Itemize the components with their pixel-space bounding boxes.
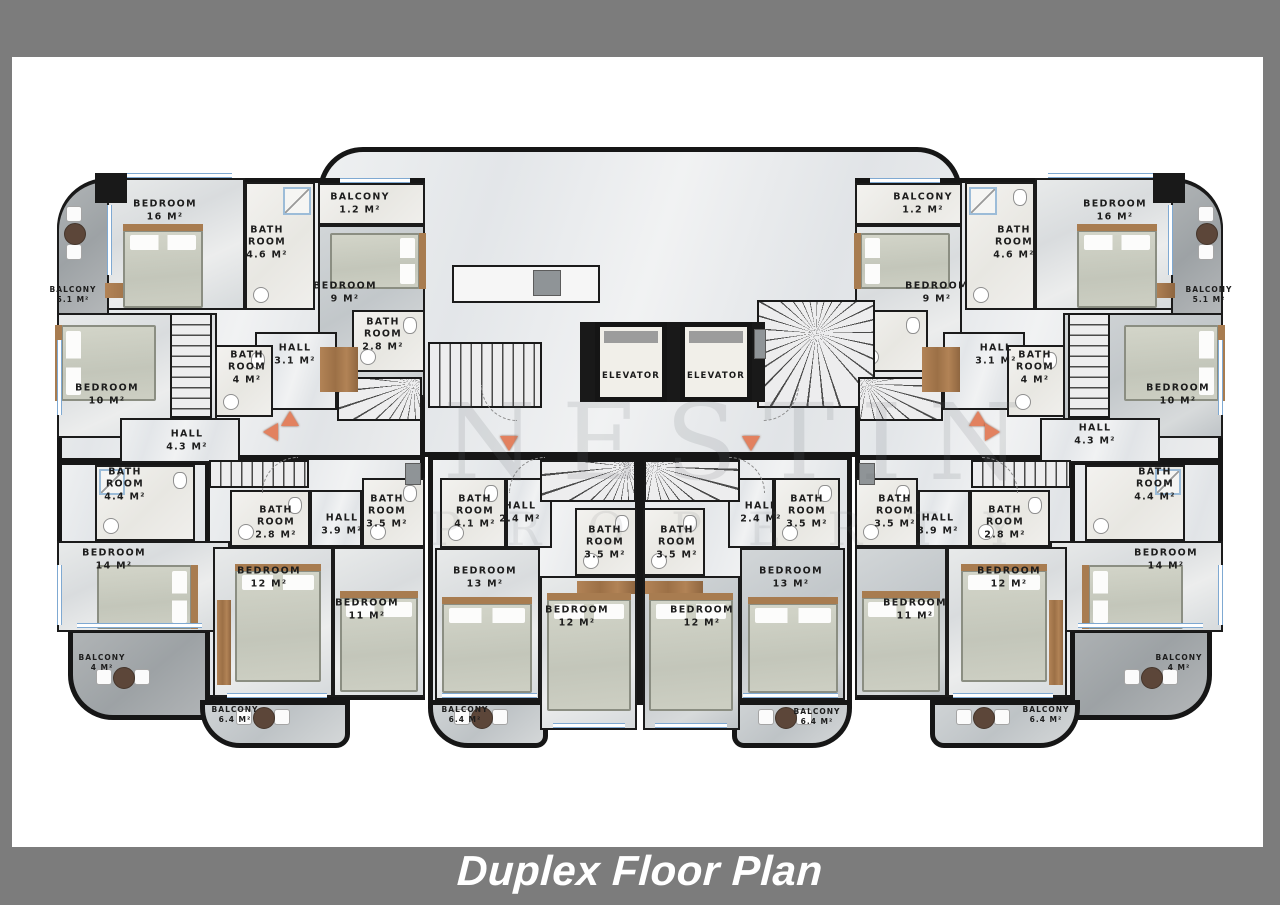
bed-bedroom-14-left [97,565,192,629]
bed-bedroom-13-d [748,603,838,693]
label-bathroom-3-5-b: BATH ROOM3.5 M² [364,494,410,531]
label-bathroom-3-5-c: BATH ROOM3.5 M² [582,525,628,562]
label-bathroom-4-right: BATH ROOM4 M² [1012,350,1058,387]
elevator-1: ELEVATOR [595,322,667,402]
elevator-2: ELEVATOR [680,322,752,402]
wood-floor-right [922,347,960,392]
label-bedroom-13-c: BEDROOM13 M² [453,566,517,591]
label-balcony-1-2-left: BALCONY1.2 M² [330,192,390,217]
window-balcony-1-2-right [870,178,940,183]
wood-floor-left [320,347,358,392]
direction-triangle-west-left [263,423,278,441]
label-hall-4-3-right: HALL4.3 M² [1074,423,1116,448]
window-bedroom-12-c [553,723,625,728]
label-bathroom-4-6-left: BATH ROOM4.6 M² [244,225,290,262]
window-bedroom-12-e [953,693,1053,698]
label-balcony-6-4-c: BALCONY6.4 M² [442,705,489,725]
frame-left [0,57,12,847]
label-bedroom-16-left: BEDROOM16 M² [133,199,197,224]
stair-apartment-c [540,460,636,502]
window-bedroom-16-right-side [1168,205,1173,275]
label-bedroom-12-e: BEDROOM12 M² [977,566,1041,591]
frame-right [1263,57,1280,847]
bed-bedroom-16-left [123,230,203,308]
label-balcony-5-1-right: BALCONY5.1 M² [1184,285,1234,305]
shower-4-6-right [969,187,997,215]
label-bathroom-2-8-left: BATH ROOM2.8 M² [360,317,406,354]
label-balcony-5-1-left: BALCONY5.1 M² [48,285,98,305]
label-bathroom-3-5-d: BATH ROOM3.5 M² [654,525,700,562]
window-bedroom-13-d [743,693,838,698]
label-balcony-6-4-d: BALCONY6.4 M² [794,707,841,727]
floor-plan: ELEVATOR ELEVATOR [57,145,1223,760]
label-bedroom-12-c: BEDROOM12 M² [545,605,609,630]
label-hall-3-9-e: HALL3.9 M² [917,513,959,538]
label-bathroom-2-8-b: BATH ROOM2.8 M² [253,505,299,542]
label-bedroom-16-right: BEDROOM16 M² [1083,199,1147,224]
label-bedroom-11-b: BEDROOM11 M² [335,598,399,623]
label-bedroom-14-right: BEDROOM14 M² [1134,548,1198,573]
direction-triangle-up-left [281,411,299,426]
elevator-1-label: ELEVATOR [602,371,660,381]
wardrobe-e [1049,600,1063,685]
window-bedroom-16-right [1048,173,1153,178]
utility-shaft-b [405,463,421,485]
label-hall-3-9-b: HALL3.9 M² [321,513,363,538]
duplex-stair-right-wing [1068,313,1110,418]
window-bedroom-14-left [57,565,62,625]
label-bedroom-9-left: BEDROOM9 M² [313,281,377,306]
window-balcony-1-2-left [340,178,410,183]
label-bedroom-9-right: BEDROOM9 M² [905,281,969,306]
label-bedroom-10-right: BEDROOM10 M² [1146,383,1210,408]
label-bedroom-10-left: BEDROOM10 M² [75,383,139,408]
label-bathroom-3-5-e: BATH ROOM3.5 M² [872,494,918,531]
label-bathroom-4-4-left: BATH ROOM4.4 M² [102,467,148,504]
label-bathroom-4-4-right: BATH ROOM4.4 M² [1132,467,1178,504]
label-bedroom-11-e: BEDROOM11 M² [883,598,947,623]
label-hall-2-4-c: HALL2.4 M² [499,501,541,526]
label-bedroom-13-d: BEDROOM13 M² [759,566,823,591]
label-balcony-6-4-e: BALCONY6.4 M² [1023,705,1070,725]
label-bathroom-4-left: BATH ROOM4 M² [224,350,270,387]
stair-apartment-d [644,460,740,502]
duplex-stair-left-wing [170,313,212,418]
wall-block-top-right [1153,173,1185,203]
window-bedroom-10-left [57,340,62,415]
wall-block-top-left [95,173,127,203]
balcony-furniture-5-1-left [67,207,81,259]
window-balcony-4-left [77,623,202,628]
window-bedroom-14-right [1218,565,1223,625]
label-balcony-4-left: BALCONY4 M² [79,653,126,673]
label-balcony-1-2-right: BALCONY1.2 M² [893,192,953,217]
label-hall-3-1-right: HALL3.1 M² [975,343,1017,368]
window-bedroom-10-right [1218,340,1223,415]
balcony-furniture-5-1-right [1199,207,1213,259]
window-bedroom-16-left-side [107,205,112,275]
label-bathroom-4-1-c: BATH ROOM4.1 M² [452,494,498,531]
window-balcony-4-right [1078,623,1203,628]
bed-bedroom-16-right [1077,230,1157,308]
elevator-left-wall [580,322,595,402]
direction-triangle-down-left [500,436,518,451]
label-bedroom-12-d: BEDROOM12 M² [670,605,734,630]
utility-shaft-left [533,270,561,296]
window-bedroom-16-left [127,173,232,178]
elevator-2-label: ELEVATOR [687,371,745,381]
bed-bedroom-13-c [442,603,532,693]
label-hall-3-1-left: HALL3.1 M² [274,343,316,368]
window-bedroom-13-c [442,693,537,698]
direction-triangle-down-right [742,436,760,451]
label-balcony-6-4-b: BALCONY6.4 M² [212,705,259,725]
elevator-divider-wall [667,322,680,402]
wardrobe-b [217,600,231,685]
label-bedroom-12-b: BEDROOM12 M² [237,566,301,591]
window-bedroom-12-d [655,723,727,728]
window-bedroom-12-b [227,693,327,698]
frame-top [0,0,1280,57]
shower-4-6-left [283,187,311,215]
label-hall-4-3-left: HALL4.3 M² [166,429,208,454]
floor-plan-page: Duplex Floor Plan ELEVATOR ELEVATOR [0,0,1280,905]
balcony-furniture-e [957,710,1009,724]
label-hall-2-4-d: HALL2.4 M² [740,501,782,526]
label-bathroom-4-6-right: BATH ROOM4.6 M² [991,225,1037,262]
plan-title: Duplex Floor Plan [0,847,1280,895]
bed-bedroom-14-right [1088,565,1183,629]
utility-shaft-e [859,463,875,485]
label-balcony-4-right: BALCONY4 M² [1156,653,1203,673]
utility-shaft-right [754,329,766,359]
label-bathroom-3-5-d2: BATH ROOM3.5 M² [784,494,830,531]
frame-bottom: Duplex Floor Plan [0,847,1280,905]
label-bathroom-2-8-e: BATH ROOM2.8 M² [982,505,1028,542]
lobby-niche [452,265,600,303]
label-bedroom-14-left: BEDROOM14 M² [82,548,146,573]
direction-triangle-east-right [985,423,1000,441]
